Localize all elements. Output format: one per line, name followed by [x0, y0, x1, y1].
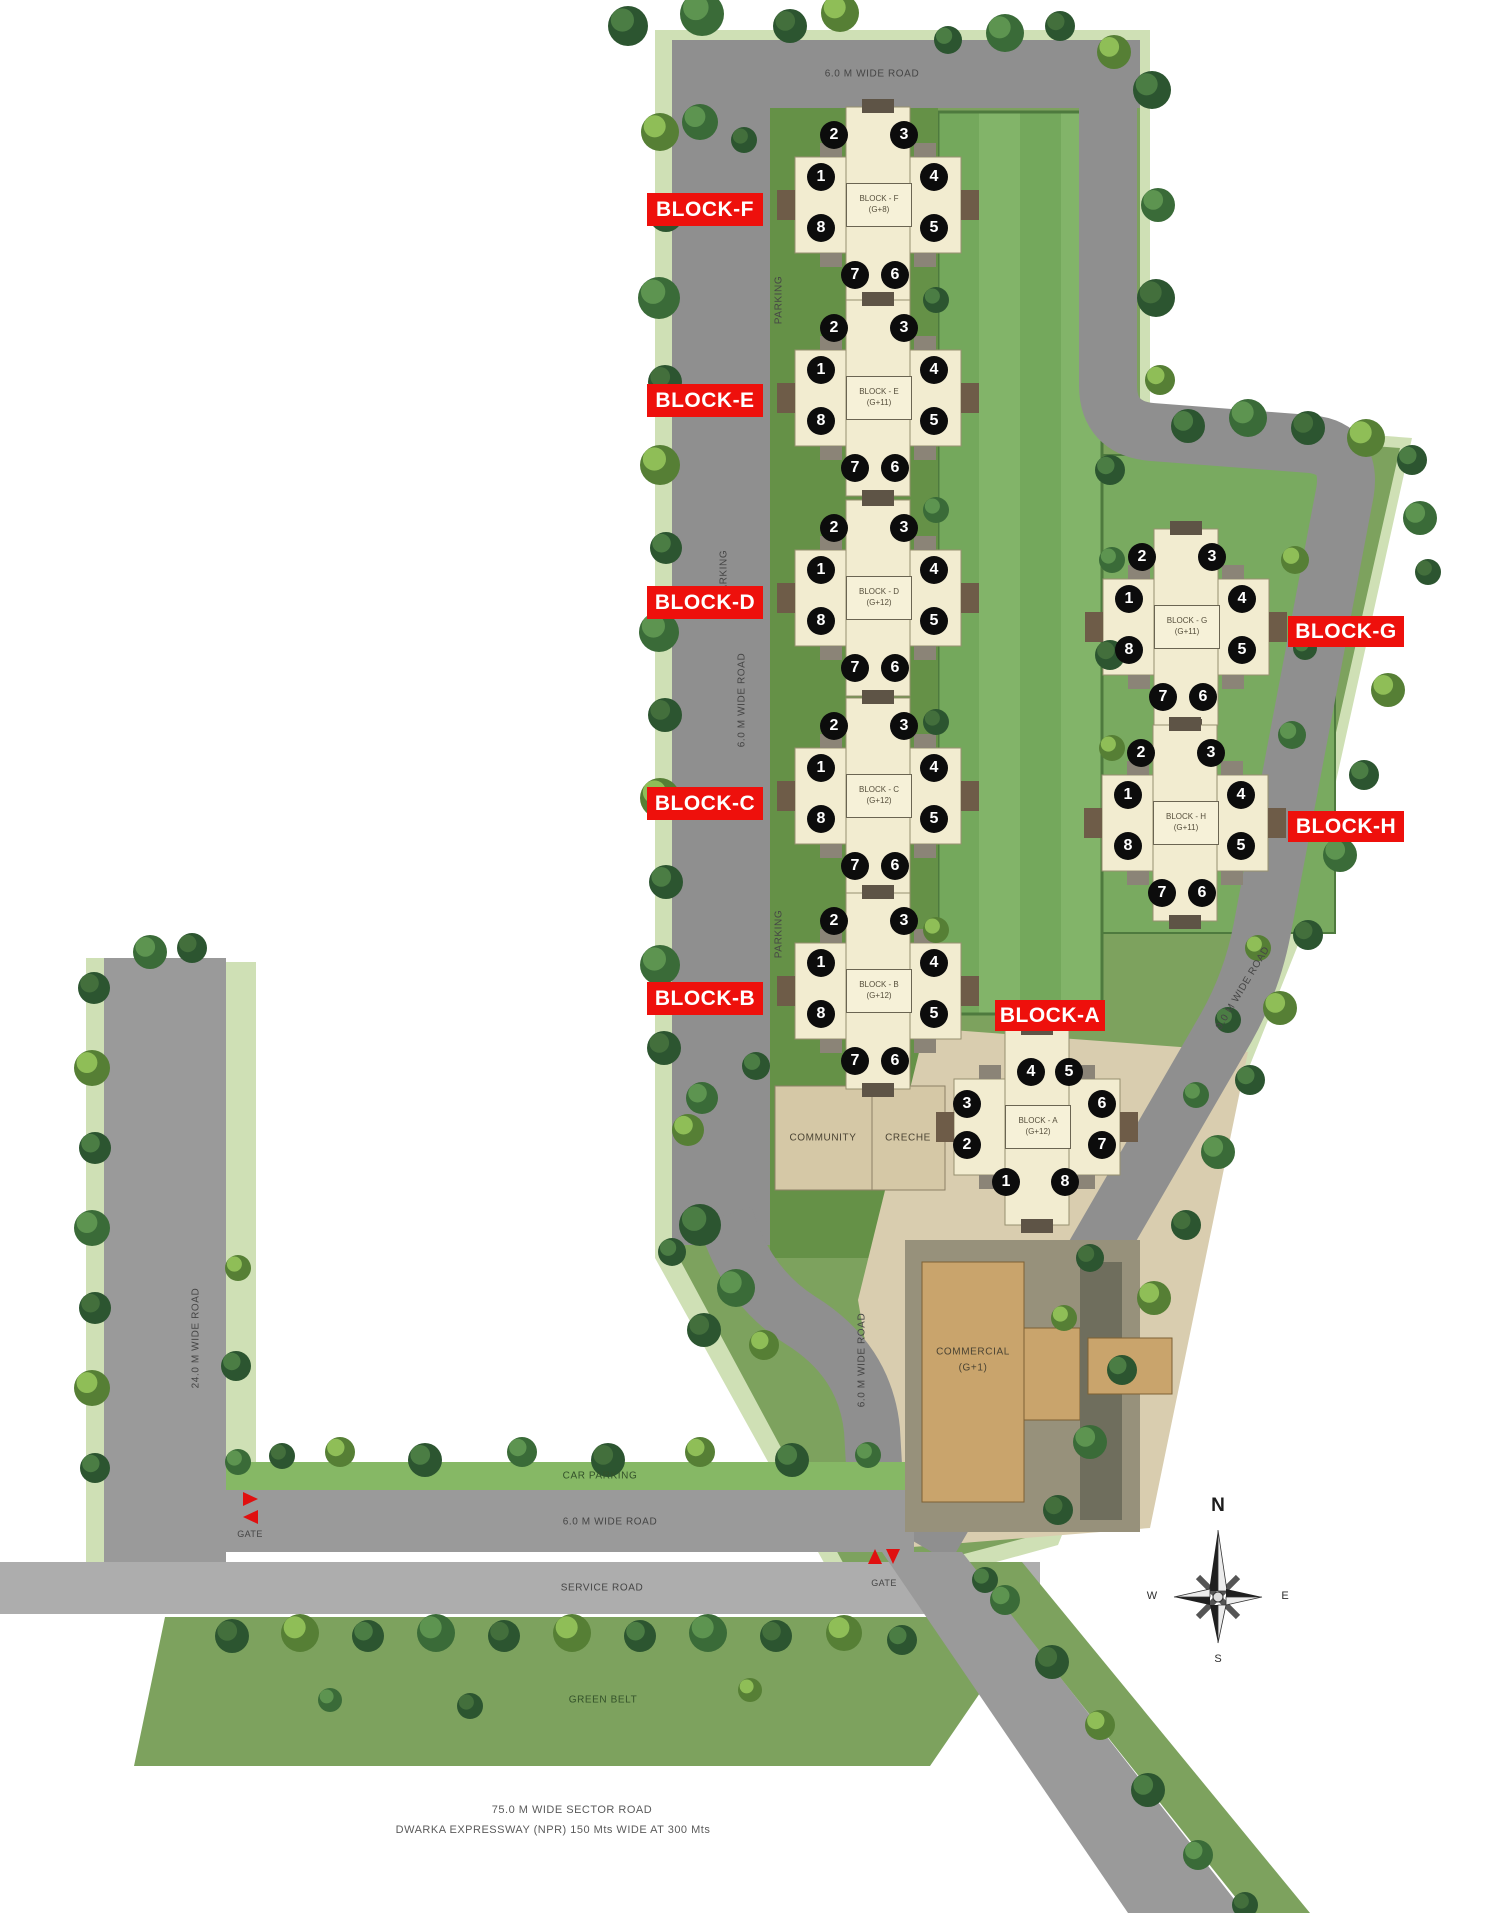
block-f-floors: (G+8)	[869, 205, 890, 216]
unit-number: 4	[920, 356, 948, 384]
block-c-name: BLOCK - C	[859, 785, 899, 796]
block-b-tag: BLOCK-B	[647, 982, 763, 1015]
block-g-tag: BLOCK-G	[1288, 616, 1404, 647]
unit-number: 5	[1228, 636, 1256, 664]
compass-south-label: S	[1214, 1653, 1221, 1665]
block-g-floors: (G+11)	[1175, 627, 1200, 638]
unit-number: 1	[992, 1168, 1020, 1196]
block-e-tag: BLOCK-E	[647, 384, 763, 417]
unit-number: 2	[820, 712, 848, 740]
unit-number: 1	[1114, 781, 1142, 809]
block-h-label: BLOCK - H (G+11)	[1153, 801, 1219, 845]
unit-number: 5	[920, 214, 948, 242]
unit-number: 5	[920, 805, 948, 833]
west-road-label: 24.0 M WIDE ROAD	[191, 1288, 202, 1389]
top-road-label: 6.0 M WIDE ROAD	[825, 69, 920, 80]
unit-number: 4	[920, 163, 948, 191]
unit-number: 1	[807, 754, 835, 782]
unit-number: 6	[881, 852, 909, 880]
unit-number: 7	[841, 852, 869, 880]
unit-number: 5	[920, 407, 948, 435]
unit-number: 1	[1115, 585, 1143, 613]
unit-number: 4	[1017, 1058, 1045, 1086]
block-d-tag: BLOCK-D	[647, 586, 763, 619]
unit-number: 6	[1189, 683, 1217, 711]
unit-number: 2	[1127, 739, 1155, 767]
commercial-label-1: COMMERCIAL	[936, 1347, 1010, 1358]
unit-number: 1	[807, 356, 835, 384]
unit-number: 3	[953, 1090, 981, 1118]
unit-number: 4	[1228, 585, 1256, 613]
unit-number: 7	[841, 454, 869, 482]
gate-label-main: GATE	[871, 1578, 896, 1588]
unit-number: 5	[920, 607, 948, 635]
unit-number: 2	[820, 514, 848, 542]
unit-number: 6	[881, 454, 909, 482]
site-plan: 6.0 M WIDE ROAD PARKING PARKING 6.0 M WI…	[0, 0, 1500, 1913]
unit-number: 1	[807, 163, 835, 191]
block-a-label: BLOCK - A (G+12)	[1005, 1105, 1071, 1149]
unit-number: 8	[1115, 636, 1143, 664]
unit-number: 7	[841, 261, 869, 289]
block-d-label: BLOCK - D (G+12)	[846, 576, 912, 620]
compass-east-label: E	[1281, 1590, 1288, 1602]
block-f-tag: BLOCK-F	[647, 193, 763, 226]
service-road-label: SERVICE ROAD	[561, 1583, 644, 1594]
unit-number: 2	[820, 907, 848, 935]
unit-number: 3	[890, 314, 918, 342]
block-c-floors: (G+12)	[866, 796, 891, 807]
inner-road-label: 6.0 M WIDE ROAD	[857, 1313, 868, 1408]
sector-road-label-1: 75.0 M WIDE SECTOR ROAD	[492, 1804, 652, 1816]
unit-number: 3	[890, 712, 918, 740]
compass-north-label: N	[1211, 1495, 1225, 1517]
unit-number: 3	[890, 514, 918, 542]
block-f-label: BLOCK - F (G+8)	[846, 183, 912, 227]
unit-number: 7	[1148, 879, 1176, 907]
unit-number: 7	[841, 654, 869, 682]
unit-number: 8	[1114, 832, 1142, 860]
unit-number: 7	[841, 1047, 869, 1075]
unit-number: 8	[807, 805, 835, 833]
label-overlay: 6.0 M WIDE ROAD PARKING PARKING 6.0 M WI…	[0, 0, 1500, 1913]
unit-number: 8	[807, 607, 835, 635]
unit-number: 5	[1055, 1058, 1083, 1086]
block-f-name: BLOCK - F	[859, 194, 898, 205]
block-h-tag: BLOCK-H	[1288, 811, 1404, 842]
parking-label-3: PARKING	[774, 910, 785, 958]
unit-number: 3	[1197, 739, 1225, 767]
unit-number: 2	[1128, 543, 1156, 571]
unit-number: 6	[1188, 879, 1216, 907]
block-e-floors: (G+11)	[867, 398, 892, 409]
unit-number: 8	[807, 1000, 835, 1028]
unit-number: 4	[920, 556, 948, 584]
block-a-tag: BLOCK-A	[995, 1000, 1105, 1031]
unit-number: 7	[1088, 1131, 1116, 1159]
left-road-label: 6.0 M WIDE ROAD	[737, 653, 748, 748]
unit-number: 8	[1051, 1168, 1079, 1196]
block-e-name: BLOCK - E	[859, 387, 899, 398]
commercial-label-2: (G+1)	[959, 1363, 988, 1374]
unit-number: 8	[807, 407, 835, 435]
block-d-floors: (G+12)	[866, 598, 891, 609]
compass-west-label: W	[1147, 1590, 1157, 1602]
unit-number: 8	[807, 214, 835, 242]
block-h-name: BLOCK - H	[1166, 812, 1206, 823]
block-a-name: BLOCK - A	[1018, 1116, 1057, 1127]
unit-number: 6	[881, 261, 909, 289]
unit-number: 2	[820, 314, 848, 342]
unit-number: 6	[1088, 1090, 1116, 1118]
unit-number: 5	[920, 1000, 948, 1028]
unit-number: 1	[807, 949, 835, 977]
block-h-floors: (G+11)	[1174, 823, 1199, 834]
block-e-label: BLOCK - E (G+11)	[846, 376, 912, 420]
community-label: COMMUNITY	[789, 1133, 856, 1144]
unit-number: 3	[1198, 543, 1226, 571]
unit-number: 2	[820, 121, 848, 149]
unit-number: 1	[807, 556, 835, 584]
parking-label-1: PARKING	[774, 276, 785, 324]
bottom-road-label: 6.0 M WIDE ROAD	[563, 1517, 658, 1528]
unit-number: 3	[890, 907, 918, 935]
block-d-name: BLOCK - D	[859, 587, 899, 598]
unit-number: 6	[881, 654, 909, 682]
unit-number: 4	[920, 949, 948, 977]
block-c-tag: BLOCK-C	[647, 787, 763, 820]
unit-number: 5	[1227, 832, 1255, 860]
block-g-name: BLOCK - G	[1167, 616, 1207, 627]
unit-number: 3	[890, 121, 918, 149]
car-parking-label: CAR PARKING	[563, 1471, 638, 1482]
right-road-label: 9.0 M WIDE ROAD	[1214, 945, 1272, 1032]
block-c-label: BLOCK - C (G+12)	[846, 774, 912, 818]
creche-label: CRECHE	[885, 1133, 931, 1144]
unit-number: 4	[920, 754, 948, 782]
sector-road-label-2: DWARKA EXPRESSWAY (NPR) 150 Mts WIDE AT …	[396, 1824, 711, 1836]
block-b-name: BLOCK - B	[859, 980, 899, 991]
green-belt-label: GREEN BELT	[569, 1695, 638, 1706]
block-g-label: BLOCK - G (G+11)	[1154, 605, 1220, 649]
unit-number: 2	[953, 1131, 981, 1159]
block-b-floors: (G+12)	[866, 991, 891, 1002]
gate-label-west: GATE	[237, 1529, 262, 1539]
block-b-label: BLOCK - B (G+12)	[846, 969, 912, 1013]
unit-number: 4	[1227, 781, 1255, 809]
unit-number: 6	[881, 1047, 909, 1075]
block-a-floors: (G+12)	[1025, 1127, 1050, 1138]
unit-number: 7	[1149, 683, 1177, 711]
